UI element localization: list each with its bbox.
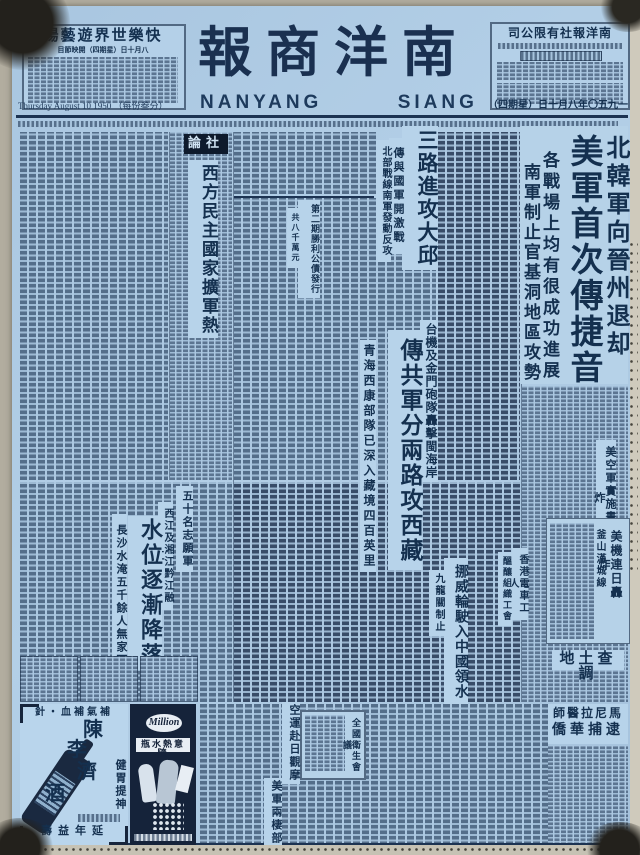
health-conference-headline: 全國衛生會議 (346, 712, 361, 778)
scan-flecks-right (628, 240, 638, 570)
health-conference-text (305, 715, 345, 771)
text-column-block (20, 132, 168, 480)
header-rule (16, 115, 628, 118)
taegu-subhead-1: 傳與國軍開激戰 (389, 138, 404, 254)
hk-tram-headline: 香港電車工人 (512, 548, 528, 620)
editorial-badge: 論社 (184, 134, 228, 154)
masthead-latin-word: NANYANG (200, 92, 322, 114)
million-logo: Million (146, 714, 182, 732)
taegu-subhead-2: 北部戰線南軍發動反攻 (376, 140, 391, 262)
dateline-chinese: （四期星）日十月八年〇五九一 (468, 101, 628, 111)
manila-headline-line2: 僑華捕逮 (550, 724, 626, 738)
busan-subhead: 釜山漢城線 (590, 526, 605, 592)
tibet-headline: 傳共軍分兩路攻西藏 (388, 330, 422, 570)
publisher-box-title: 司公限有社報洋南 (496, 27, 624, 39)
tibet-subhead: 青海西康部隊已深入藏境四百英里 (360, 340, 376, 572)
taegu-headline: 三路進攻大邱 (402, 126, 438, 270)
thermos-flask-image (137, 763, 157, 803)
masthead-latin-word: SIANG (398, 92, 478, 114)
small-ad-box (80, 656, 138, 702)
million-logo-text: Million (149, 717, 180, 728)
column-rule (233, 132, 234, 702)
manila-headline-line1: 師醫拉尼馬 (550, 707, 626, 719)
scan-flecks-bottom (0, 845, 640, 855)
korea-kicker: 北韓軍向晉州退却 (598, 130, 628, 364)
text-column-block (200, 704, 548, 845)
publisher-box: 司公限有社報洋南 (490, 22, 630, 110)
small-ad-box (20, 656, 78, 702)
norway-ship-subhead: 九龍關制止 (429, 570, 444, 636)
chen-li-ji-slogan-top: 針・血補氣補 (24, 708, 124, 718)
korea-subhead-2: 南軍制止官基洞地區攻勢 (518, 158, 540, 388)
amphibious-headline: 美軍兩棲部隊 (264, 778, 282, 855)
section-rule (234, 196, 374, 198)
text-column-block (234, 482, 522, 702)
masthead-title: 報商洋南 (188, 26, 480, 80)
chen-li-ji-brand-char: 陳 (82, 720, 104, 740)
text-column-block (234, 132, 376, 194)
thermos-flask-image (156, 759, 179, 805)
million-thermos-ad: Million 瓶水熱意隨 (130, 704, 196, 845)
happy-world-ad-program-columns (28, 57, 178, 103)
hk-tram-subhead: 醞釀組織工會 (498, 552, 512, 626)
busan-headline: 美機連日轟炸 (604, 522, 623, 608)
volunteers-headline: 五十名志願軍 (176, 486, 193, 572)
small-ad-box (140, 656, 198, 702)
million-band-label: 瓶水熱意隨 (136, 738, 190, 752)
dateline-english: Thursday August 10 1950 （每份叁分） (18, 102, 208, 111)
japan-visit-headline: 空運赴日觀摩 (282, 702, 300, 784)
chen-li-ji-brand-char: 濟 (76, 762, 98, 782)
bonds-subhead: 共八千萬元 (287, 208, 300, 268)
flood-headline: 水位逐漸降落 (128, 516, 162, 670)
bonds-headline: 第二期勝利公債發行 (298, 200, 320, 298)
chen-li-ji-brand-char: 李 (66, 740, 88, 760)
land-survey-headline: 地土查調 (552, 650, 624, 670)
text-column-block (438, 132, 520, 480)
editorial-headline: 西方民主國家擴軍熱 (188, 160, 218, 338)
ad-corner-bracket (109, 826, 128, 845)
busan-article-text (550, 523, 594, 639)
newspaper-scan: 場藝遊界世樂快 目節映開（四期星）日十月八 報商洋南 NANYANG SIANG… (0, 0, 640, 855)
chen-li-ji-brand-char: 酒 (44, 784, 66, 804)
publisher-box-address-line (498, 43, 622, 49)
publisher-box-phone-line (520, 51, 602, 61)
manila-headline-block: 師醫拉尼馬 僑華捕逮 (548, 704, 628, 744)
publisher-box-staff-columns (497, 62, 623, 80)
korea-subhead-1: 各戰場上均有很成功進展 (537, 146, 559, 386)
million-caption-strip (134, 834, 192, 841)
korea-main-headline: 美軍首次傳捷音 (556, 132, 600, 388)
dealer-grid (152, 802, 184, 830)
tibet-kicker: 台機及金門砲隊轟擊閩海岸 (420, 320, 438, 482)
chen-li-ji-slogan-right: 健胃提神 (110, 756, 126, 814)
chen-li-ji-fine-print (78, 814, 120, 822)
norway-ship-headline: 挪威輪駛入中國領水 (444, 558, 468, 704)
column-rule (169, 132, 170, 480)
